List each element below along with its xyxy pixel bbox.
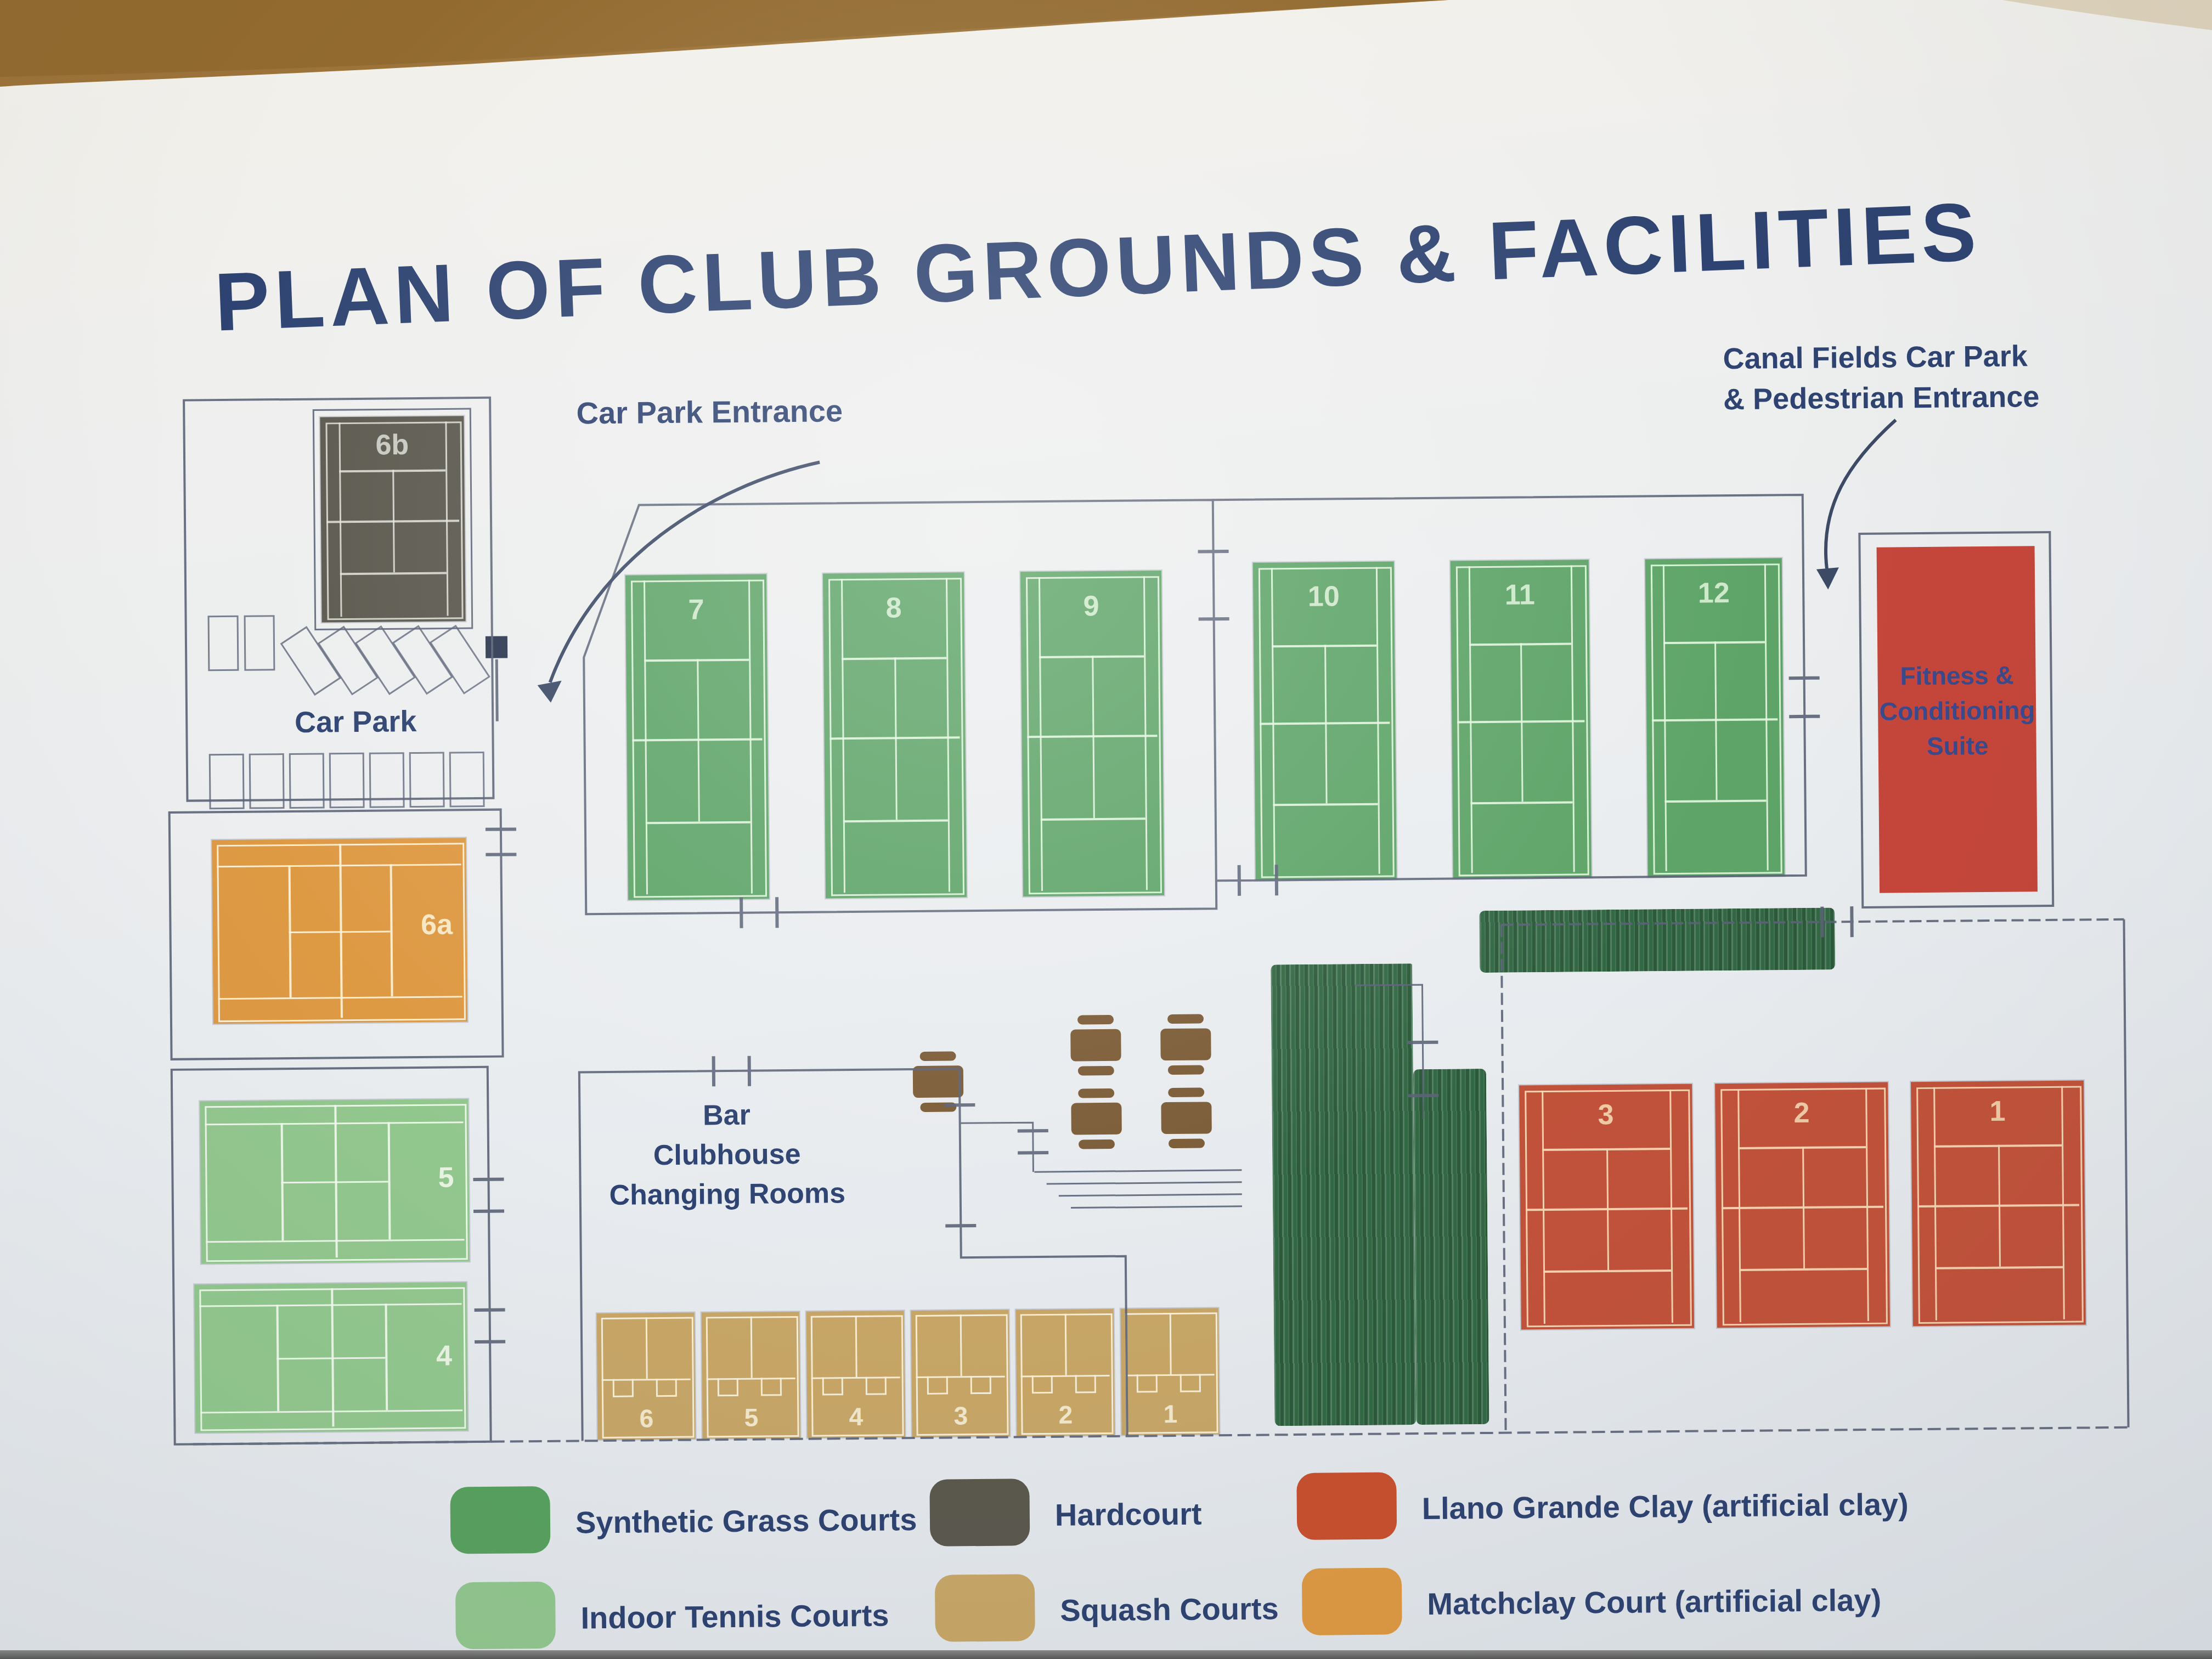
photo-bottom-edge (0, 1650, 2212, 1659)
photo-of-club-grounds-plan: PLAN OF CLUB GROUNDS & FACILITIES (0, 0, 2212, 1659)
wood-table-edge (0, 0, 2212, 1659)
